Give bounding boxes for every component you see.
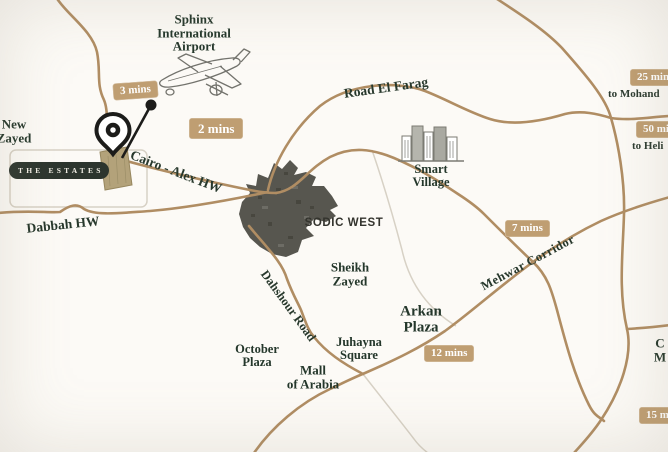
label-arkan-plaza: Arkan Plaza	[400, 304, 442, 335]
juhayna-south-road	[363, 374, 428, 452]
road-right-horizontal	[611, 116, 668, 119]
label-smart-village: Smart Village	[412, 163, 449, 189]
label-october-plaza: October Plaza	[235, 343, 279, 369]
label-new-zayed: New Zayed	[0, 117, 31, 144]
label-sheikh-zayed: Sheikh Zayed	[331, 260, 369, 287]
sodic-west-area	[239, 160, 338, 257]
travel-time-badge-3min: 3 mins	[112, 80, 158, 100]
label-sodic-west: SODIC WEST	[305, 218, 384, 230]
travel-time-badge-25min: 25 mins	[630, 69, 668, 86]
travel-time-badge-15min: 15 mins	[639, 407, 668, 424]
destination-mohandessin: to Mohand	[608, 88, 660, 100]
travel-time-badge-2min: 2 mins	[189, 118, 243, 139]
minor-roads	[10, 150, 456, 452]
travel-time-badge-50min: 50 mins	[636, 121, 668, 138]
destination-heliopolis: to Heli	[632, 140, 663, 152]
label-sphinx-airport: Sphinx International Airport	[157, 13, 231, 54]
label-partial-right-edge: C M	[654, 336, 666, 363]
road-dabbah	[0, 192, 268, 213]
airplane-illustration	[160, 49, 250, 96]
road-right-branch	[627, 325, 668, 329]
the-estates-badge: THE ESTATES	[9, 162, 109, 179]
buildings-illustration	[398, 126, 464, 161]
location-map: Sphinx International Airport New Zayed S…	[0, 0, 668, 452]
label-juhayna-square: Juhayna Square	[336, 336, 382, 362]
travel-time-badge-12min: 12 mins	[424, 345, 474, 362]
travel-time-badge-7min: 7 mins	[505, 220, 550, 237]
label-mall-of-arabia: Mall of Arabia	[287, 363, 339, 390]
